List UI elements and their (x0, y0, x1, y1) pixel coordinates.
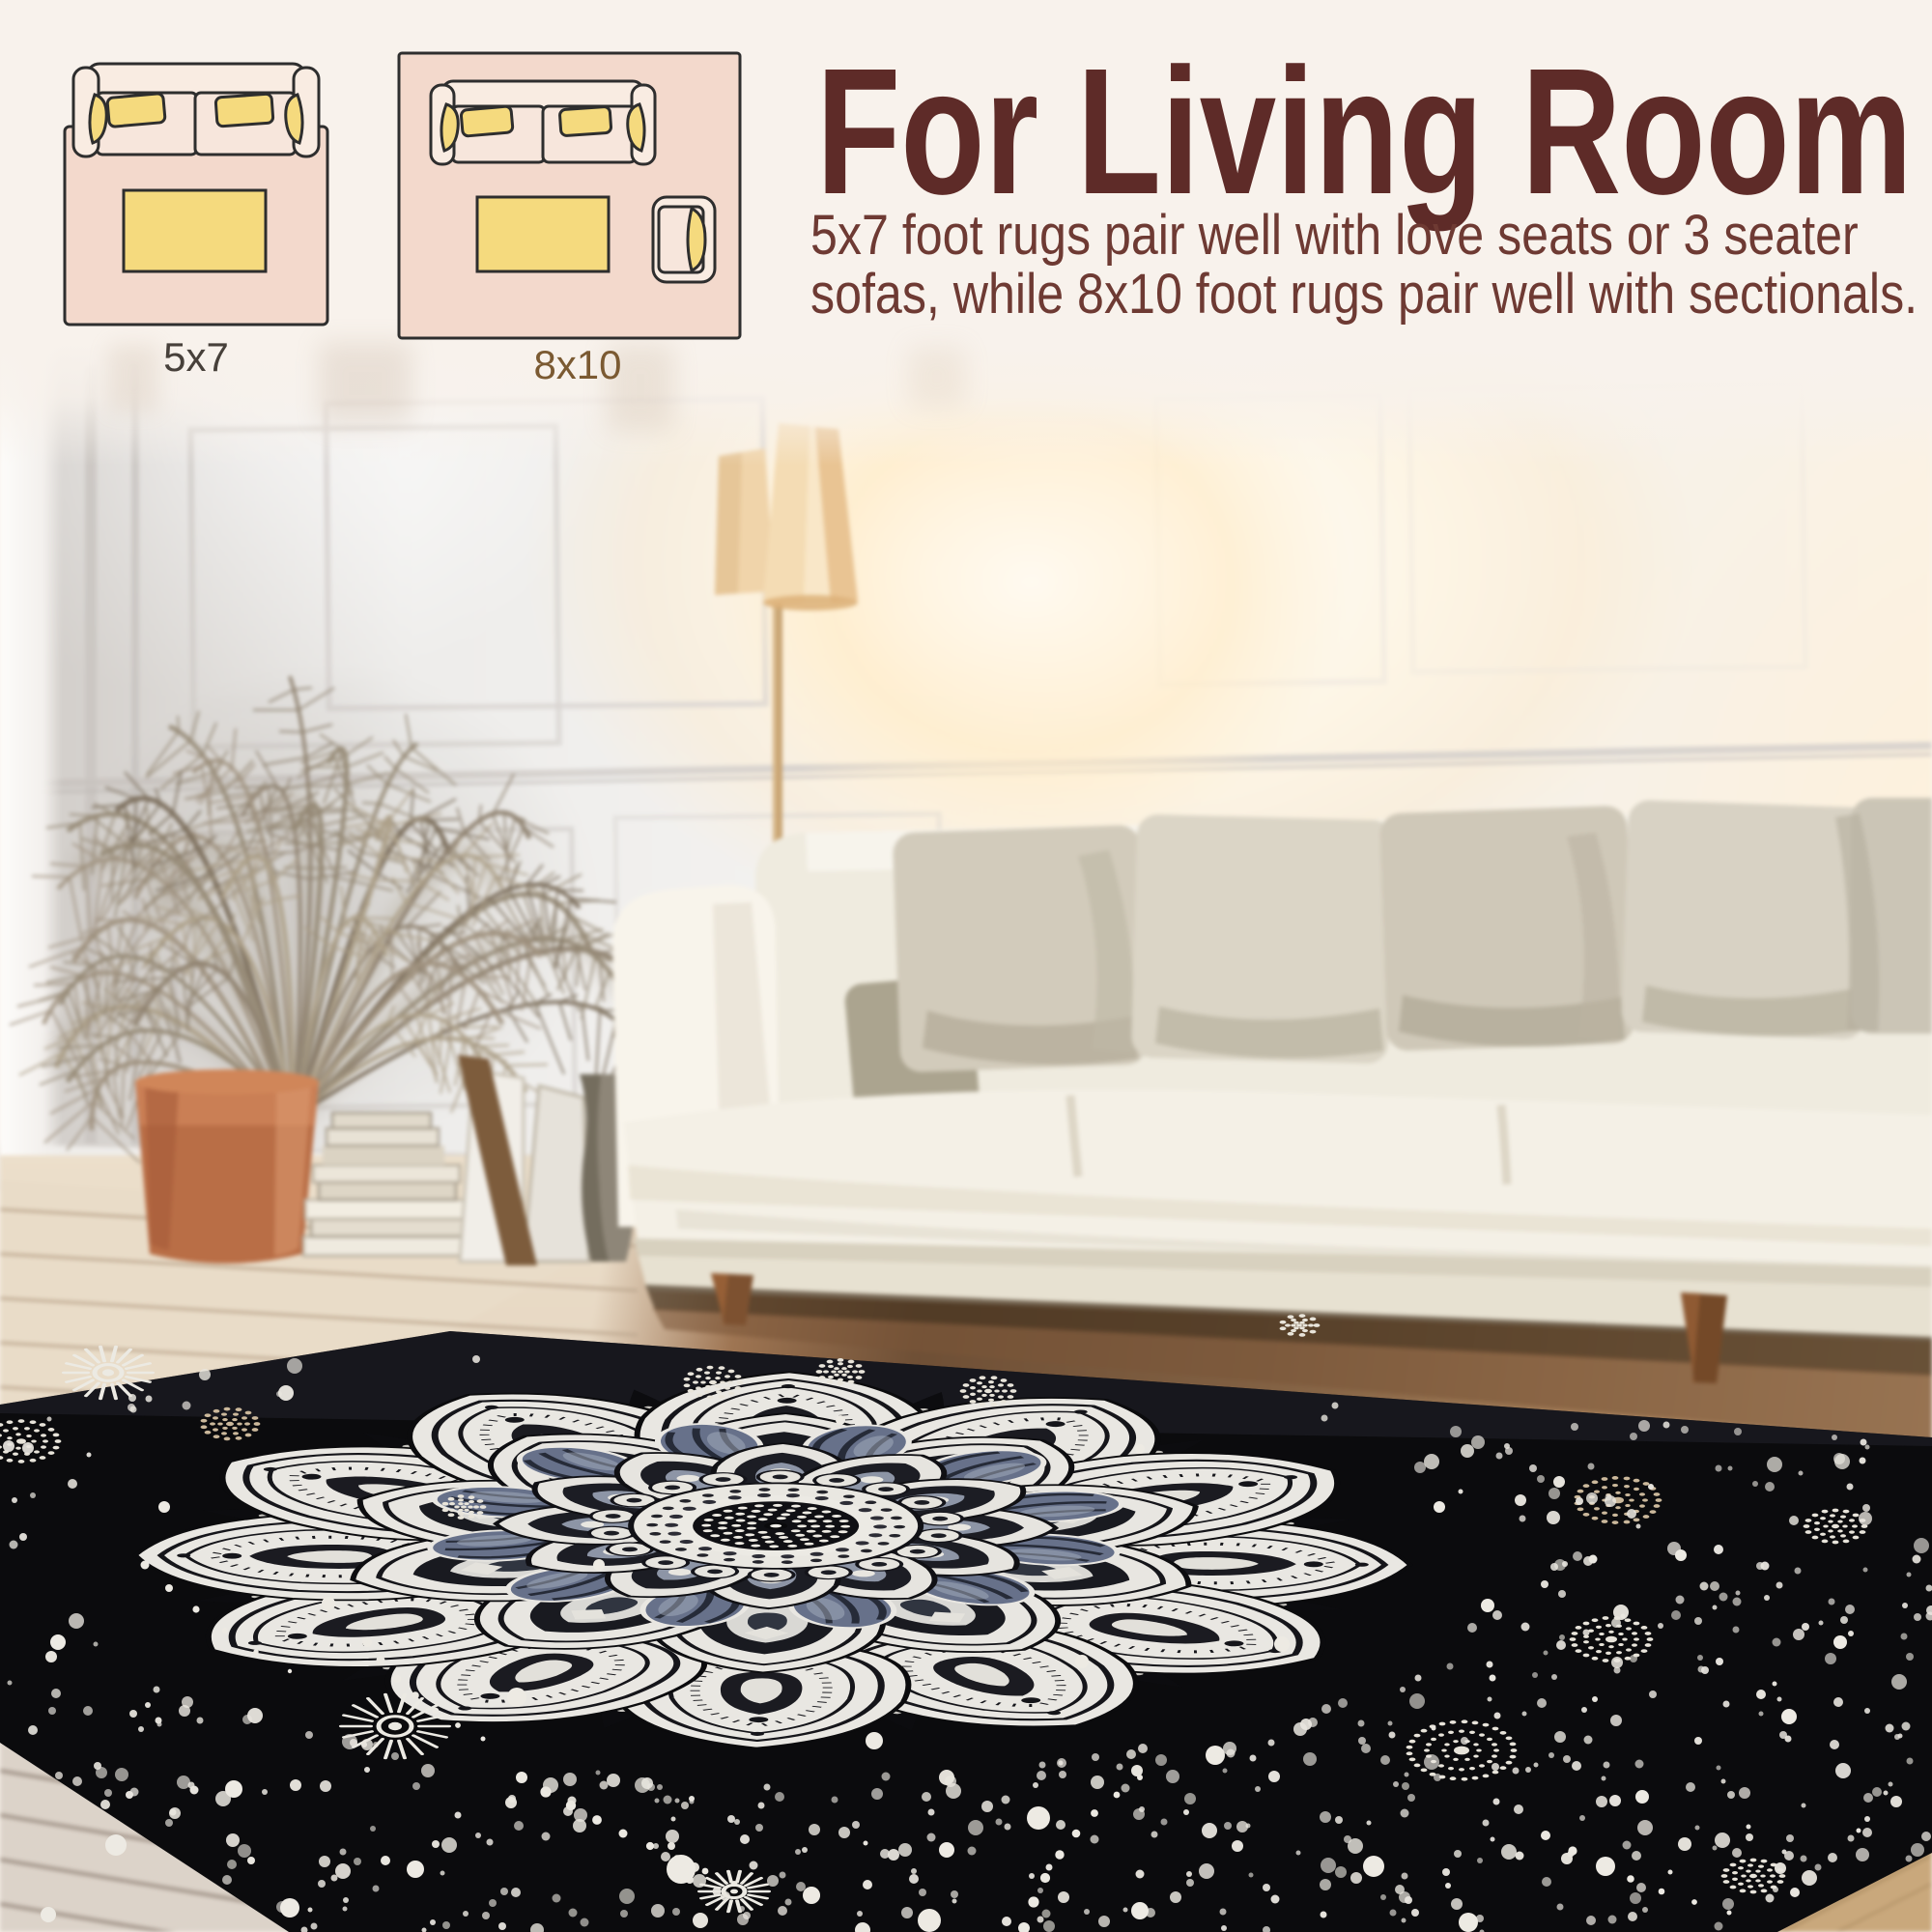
svg-text:8x10: 8x10 (533, 342, 621, 387)
